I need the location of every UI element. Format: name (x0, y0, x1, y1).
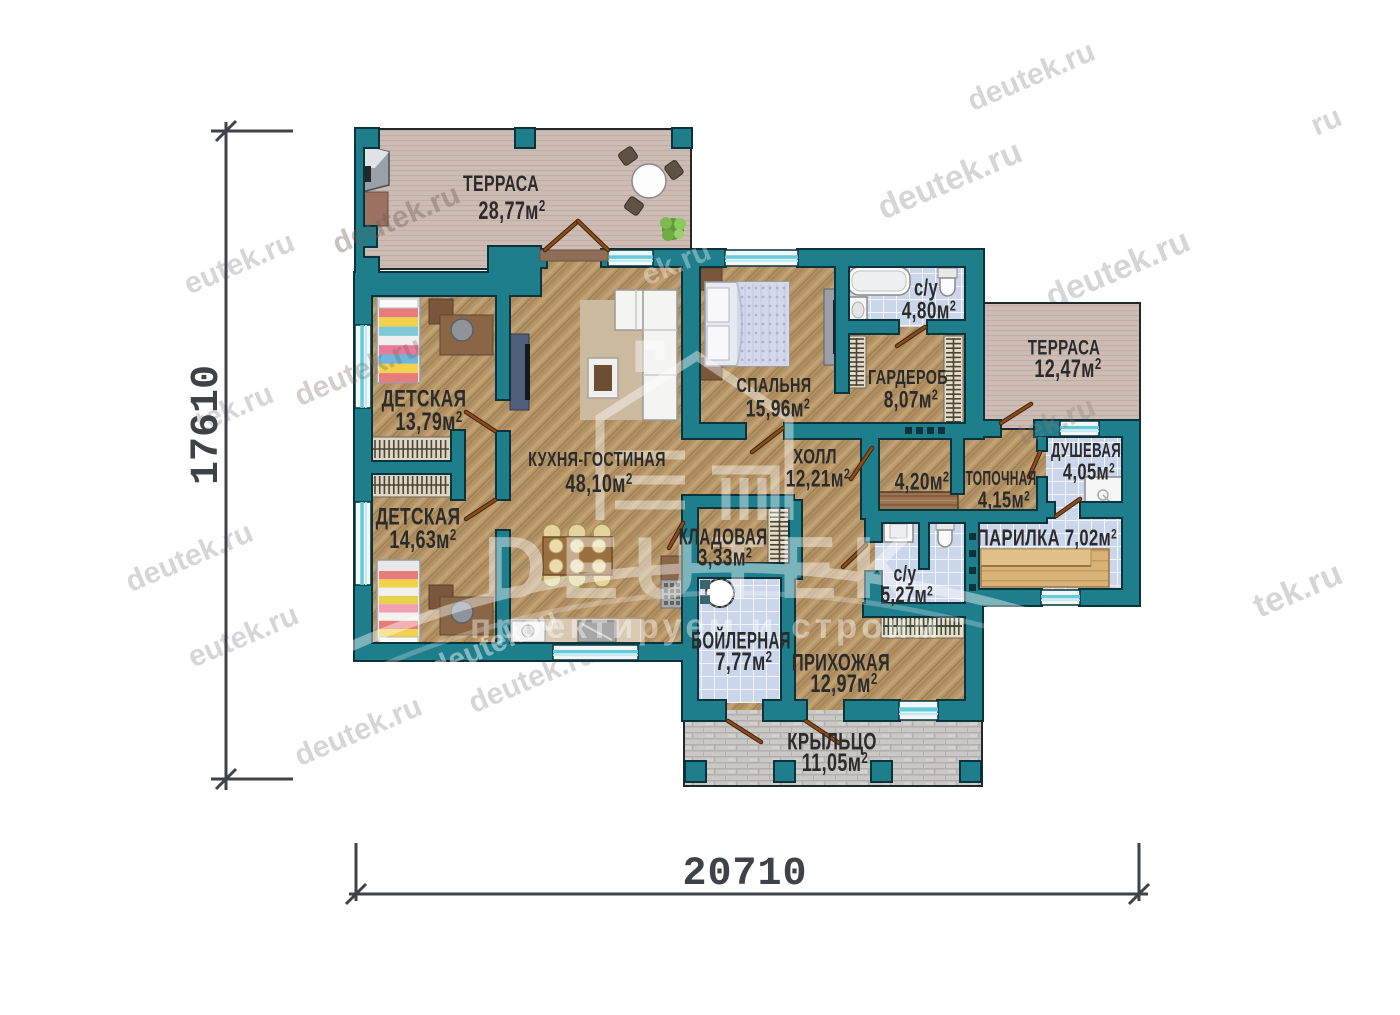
svg-text:20710: 20710 (682, 852, 807, 897)
svg-text:48,10м2: 48,10м2 (565, 469, 632, 498)
svg-text:14,63м2: 14,63м2 (389, 525, 456, 554)
svg-text:15,96м2: 15,96м2 (746, 395, 811, 423)
svg-text:ПАРИЛКА 7,02м2: ПАРИЛКА 7,02м2 (977, 526, 1117, 551)
svg-text:11,05м2: 11,05м2 (802, 748, 868, 777)
svg-text:12,47м2: 12,47м2 (1034, 354, 1101, 383)
svg-text:4,20м2: 4,20м2 (895, 468, 950, 496)
svg-text:ТЕРРАСА: ТЕРРАСА (463, 173, 539, 197)
svg-text:12,97м2: 12,97м2 (810, 669, 877, 698)
svg-text:СПАЛЬНЯ: СПАЛЬНЯ (737, 374, 812, 397)
svg-text:ХОЛЛ: ХОЛЛ (793, 444, 837, 468)
svg-text:12,21м2: 12,21м2 (786, 465, 851, 493)
svg-text:7,77м2: 7,77м2 (716, 647, 773, 676)
svg-text:8,07м2: 8,07м2 (884, 386, 939, 414)
svg-text:13,79м2: 13,79м2 (395, 407, 462, 436)
svg-text:4,05м2: 4,05м2 (1063, 460, 1115, 485)
svg-text:17610: 17610 (185, 365, 230, 485)
svg-text:28,77м2: 28,77м2 (478, 196, 545, 225)
svg-text:5,27м2: 5,27м2 (881, 583, 933, 608)
svg-text:КУХНЯ-ГОСТИНАЯ: КУХНЯ-ГОСТИНАЯ (528, 448, 666, 471)
svg-text:4,15м2: 4,15м2 (978, 488, 1030, 513)
svg-text:3,33м2: 3,33м2 (698, 544, 753, 572)
svg-text:4,80м2: 4,80м2 (902, 297, 957, 325)
svg-text:ДУШЕВАЯ: ДУШЕВАЯ (1051, 439, 1121, 461)
